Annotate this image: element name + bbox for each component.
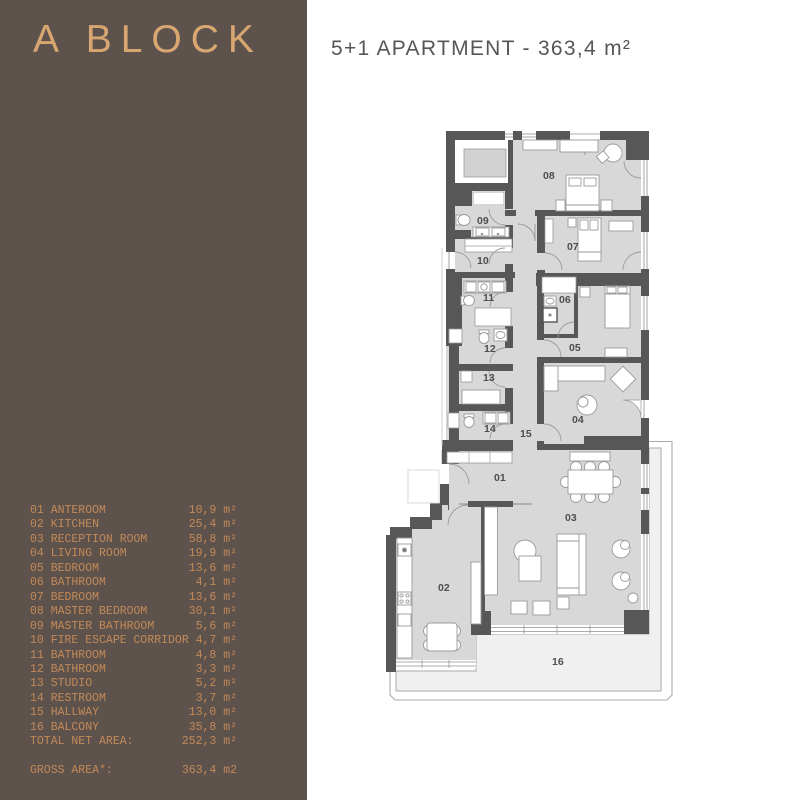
svg-text:08: 08 (543, 170, 555, 182)
svg-text:09: 09 (477, 215, 489, 227)
svg-text:12: 12 (484, 343, 496, 355)
svg-text:07: 07 (567, 241, 579, 253)
svg-text:15: 15 (520, 428, 532, 440)
svg-text:05: 05 (569, 342, 581, 354)
svg-text:16: 16 (552, 656, 564, 668)
svg-text:06: 06 (559, 294, 571, 306)
svg-text:14: 14 (484, 423, 496, 435)
svg-text:13: 13 (483, 372, 495, 384)
svg-text:10: 10 (477, 255, 489, 267)
svg-text:03: 03 (565, 512, 577, 524)
svg-text:02: 02 (438, 582, 450, 594)
svg-text:11: 11 (483, 292, 494, 304)
svg-text:01: 01 (494, 472, 506, 484)
svg-text:04: 04 (572, 414, 584, 426)
